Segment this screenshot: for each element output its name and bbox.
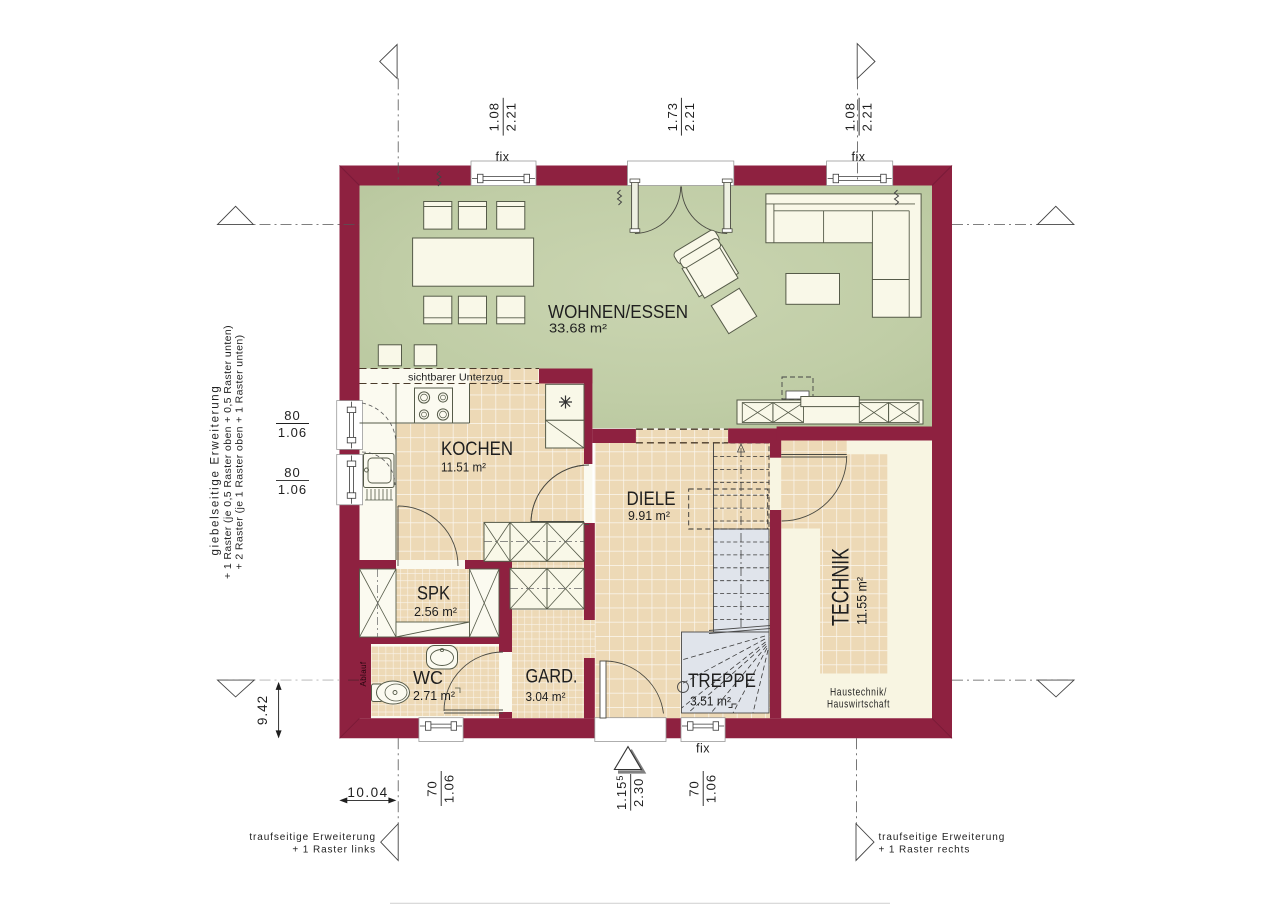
svg-text:+ 2 Raster (je 1 Raster oben +: + 2 Raster (je 1 Raster oben + 1 Raster …: [234, 335, 246, 570]
svg-text:1.06: 1.06: [278, 425, 307, 440]
svg-text:10.04: 10.04: [347, 785, 388, 800]
svg-text:70: 70: [425, 780, 440, 796]
svg-text:2.56 m²: 2.56 m²: [414, 604, 458, 619]
svg-text:2.30: 2.30: [631, 778, 646, 807]
svg-text:WC: WC: [413, 667, 443, 688]
svg-text:DIELE: DIELE: [627, 488, 676, 510]
svg-text:9.91 m²: 9.91 m²: [628, 508, 671, 523]
svg-text:2.21: 2.21: [860, 102, 875, 131]
svg-text:WOHNEN/ESSEN: WOHNEN/ESSEN: [548, 301, 688, 322]
svg-text:traufseitige Erweiterung: traufseitige Erweiterung: [879, 832, 1006, 843]
svg-text:2.21: 2.21: [504, 102, 519, 131]
svg-text:33.68 m²: 33.68 m²: [549, 321, 608, 336]
svg-text:TECHNIK: TECHNIK: [828, 548, 855, 626]
svg-text:2.71 m²: 2.71 m²: [413, 688, 456, 703]
svg-text:Hauswirtschaft: Hauswirtschaft: [827, 699, 890, 711]
svg-text:SPK: SPK: [417, 583, 450, 605]
svg-text:Ablauf: Ablauf: [359, 661, 368, 686]
svg-text:fix: fix: [852, 150, 866, 164]
svg-text:80: 80: [284, 465, 300, 480]
svg-text:traufseitige Erweiterung: traufseitige Erweiterung: [249, 832, 376, 843]
svg-text:+ 1 Raster (je 0,5 Raster oben: + 1 Raster (je 0,5 Raster oben + 0,5 Ras…: [222, 325, 234, 579]
svg-text:1.06: 1.06: [278, 482, 307, 497]
svg-text:+ 1 Raster rechts: + 1 Raster rechts: [879, 845, 971, 856]
svg-text:1.06: 1.06: [442, 774, 457, 803]
svg-text:1.06: 1.06: [704, 774, 719, 803]
svg-text:fix: fix: [496, 150, 510, 164]
svg-text:9.42: 9.42: [255, 695, 270, 725]
svg-text:2.21: 2.21: [682, 102, 697, 131]
svg-text:KOCHEN: KOCHEN: [441, 438, 513, 460]
svg-text:1.73: 1.73: [665, 102, 680, 131]
svg-text:giebelseitige Erweiterung: giebelseitige Erweiterung: [210, 385, 222, 556]
svg-text:fix: fix: [696, 742, 710, 756]
svg-text:1.08: 1.08: [843, 102, 858, 131]
svg-text:GARD.: GARD.: [526, 667, 578, 688]
svg-text:11.55 m²: 11.55 m²: [855, 577, 870, 625]
svg-text:1.08: 1.08: [487, 102, 502, 131]
svg-text:11.51 m²: 11.51 m²: [441, 460, 487, 475]
svg-text:sichtbarer Unterzug: sichtbarer Unterzug: [408, 372, 503, 384]
svg-text:3.04 m²: 3.04 m²: [526, 689, 567, 704]
svg-text:Haustechnik/: Haustechnik/: [830, 687, 887, 699]
svg-text:+ 1 Raster links: + 1 Raster links: [292, 845, 376, 856]
svg-text:3.51 m²: 3.51 m²: [690, 694, 732, 709]
svg-text:80: 80: [284, 408, 300, 423]
svg-text:TREPPE: TREPPE: [688, 671, 756, 692]
svg-text:70: 70: [687, 780, 702, 796]
